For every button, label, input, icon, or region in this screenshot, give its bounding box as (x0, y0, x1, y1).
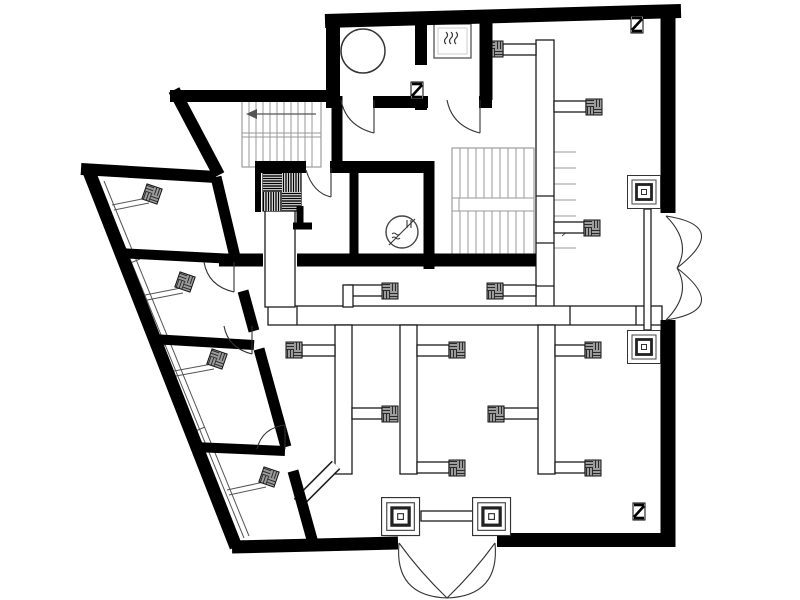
unit-box (382, 406, 398, 422)
door-circle-room (341, 100, 374, 133)
unit-box (449, 460, 465, 476)
stub-c9 (503, 285, 536, 296)
wall-bottom-left (232, 543, 398, 547)
stub-c5 (417, 462, 449, 473)
stub-c3 (352, 408, 382, 419)
ornate-column-right-bottom (628, 331, 661, 364)
wing-glazing (99, 181, 266, 538)
wall-wing-partition-3 (194, 447, 285, 451)
ornate-column-bottom-left (382, 498, 420, 536)
door-right-entrance-leaf-bottom (666, 268, 702, 320)
beam-vertical-1 (335, 325, 352, 474)
unit-box (449, 342, 465, 358)
unit-box (382, 283, 398, 299)
wall-wing-inner-3 (259, 349, 286, 447)
wall-wing-inner-2 (243, 291, 254, 331)
door-bottom-entrance-leaf-left (399, 543, 447, 598)
wall-wing-inner-1 (216, 177, 235, 257)
annex-stair-landing-lines (242, 133, 321, 137)
stub-c8-riser (343, 285, 353, 307)
door-sauna-room (447, 100, 480, 133)
entrance-beam-bottom (421, 511, 474, 521)
beam-vertical-2 (400, 325, 417, 474)
floor-plan-page (0, 0, 800, 600)
stub-b3 (554, 222, 584, 233)
wall-top (325, 11, 681, 21)
unit-box (585, 342, 601, 358)
wall-wing-partition-2 (152, 339, 254, 345)
stub-c6 (555, 345, 585, 356)
main-stair-outline (452, 148, 534, 260)
window-z-symbol-bottom-right (633, 503, 645, 520)
round-table (341, 29, 385, 73)
stub-c7 (555, 462, 585, 473)
stub-c1 (302, 345, 335, 356)
door-bottom-entrance-leaf-right (447, 543, 495, 598)
beam-horizontal-main (268, 306, 662, 325)
floor-plan (0, 0, 800, 600)
unit-box (584, 220, 600, 236)
ornate-column-bottom-right (473, 498, 511, 536)
sauna-heater-outline (434, 24, 471, 58)
window-z-symbol-mid-left (411, 82, 423, 99)
unit-box (585, 460, 601, 476)
duct-vertical-main (536, 40, 554, 310)
stub-c4 (504, 408, 538, 419)
unit-box (487, 283, 503, 299)
unit-box-wing (207, 349, 227, 369)
stub-b2 (554, 101, 586, 112)
main-stair-rail (452, 198, 534, 211)
unit-box (488, 406, 504, 422)
wall-wing-inner-4 (293, 471, 313, 543)
door-mid-room (306, 168, 331, 197)
unit-box-wing (175, 272, 195, 292)
elevator-hatch-tl (263, 173, 282, 192)
wall-wing-top (81, 169, 216, 177)
unit-box-wing (259, 467, 279, 487)
unit-box (586, 99, 602, 115)
annex-stair-outline (242, 97, 321, 167)
main-stair-treads-upper (460, 148, 524, 198)
elevator-hatch-tr (282, 173, 301, 192)
shaft-duct (265, 206, 295, 307)
wall-wing-partition-1 (118, 253, 235, 259)
washer-symbol-waves-icon (392, 233, 400, 239)
unit-box-wing (142, 184, 162, 204)
window-z-symbol-top-right (631, 16, 643, 33)
elevator-hatch-bl (263, 192, 282, 211)
ornate-column-right-top (628, 176, 661, 209)
storefront-mullion (644, 209, 651, 330)
annex-stair-treads (249, 97, 312, 167)
unit-box (286, 342, 302, 358)
stub-b1 (503, 44, 536, 55)
stub-c2 (417, 345, 449, 356)
wall-annex-diagonal (174, 90, 219, 175)
main-stair-treads-lower (460, 211, 524, 260)
unit-stub-w4 (227, 482, 266, 495)
beam-vertical-3 (538, 325, 555, 474)
annex-stair-arrowhead (246, 109, 257, 119)
door-right-entrance-leaf-top (666, 216, 702, 268)
